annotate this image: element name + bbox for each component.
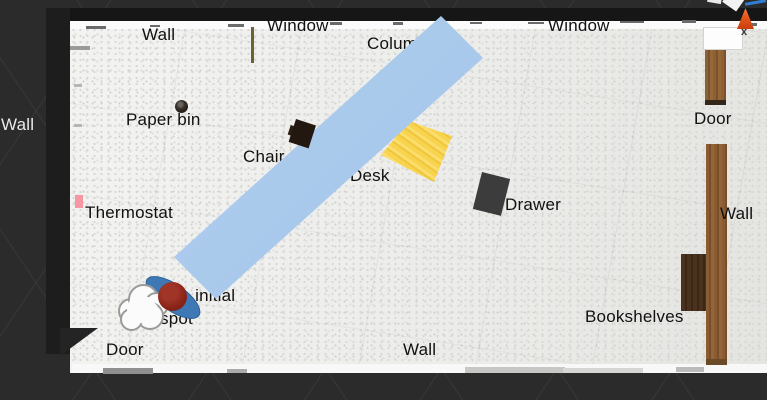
- label-wall-left: Wall: [1, 115, 34, 135]
- bottom-wall-segment: [563, 368, 643, 373]
- wall-tick: [228, 24, 244, 27]
- bottom-wall-segment: [103, 368, 153, 374]
- label-window-right: Window: [548, 16, 610, 36]
- label-drawer: Drawer: [505, 195, 561, 215]
- bottom-wall-baseboard: [72, 364, 767, 373]
- axis-gizmo-icon[interactable]: [707, 0, 723, 4]
- bottom-wall-segment: [676, 367, 704, 372]
- bookshelves-object[interactable]: [681, 254, 706, 311]
- label-wall-bottom: Wall: [403, 340, 436, 360]
- window-frame-post: [251, 27, 254, 63]
- label-door-right: Door: [694, 109, 732, 129]
- label-wall-top: Wall: [142, 25, 175, 45]
- thermostat-object[interactable]: [75, 195, 83, 208]
- wall-tick: [74, 84, 82, 87]
- scene-viewport: x Wall Window Column Window Wall Paper b…: [0, 0, 767, 400]
- axis-gizmo-blue-axis: [745, 0, 766, 6]
- wall-tick: [86, 26, 106, 29]
- door-right-object[interactable]: [705, 46, 726, 105]
- wall-tick: [70, 46, 90, 50]
- label-window-left: Window: [267, 16, 329, 36]
- left-wall-render: [46, 8, 70, 354]
- wall-tick: [393, 22, 403, 25]
- wall-tick: [620, 21, 644, 23]
- label-paper-bin: Paper bin: [126, 110, 201, 130]
- wall-tick: [528, 22, 544, 24]
- doorway-opening: [703, 27, 743, 50]
- bottom-wall-segment: [465, 367, 565, 373]
- top-wall-render: [46, 8, 767, 22]
- label-thermostat: Thermostat: [85, 203, 173, 223]
- wall-tick: [74, 124, 82, 127]
- label-wall-right: Wall: [720, 204, 753, 224]
- wall-tick: [330, 22, 342, 25]
- wall-tick: [682, 20, 696, 23]
- label-bookshelves: Bookshelves: [585, 307, 684, 327]
- bottom-wall-segment: [227, 369, 247, 373]
- avatar-start-marker[interactable]: [158, 282, 187, 311]
- wall-tick: [470, 22, 482, 24]
- label-door-bottom: Door: [106, 340, 144, 360]
- right-wall-object[interactable]: [706, 144, 727, 365]
